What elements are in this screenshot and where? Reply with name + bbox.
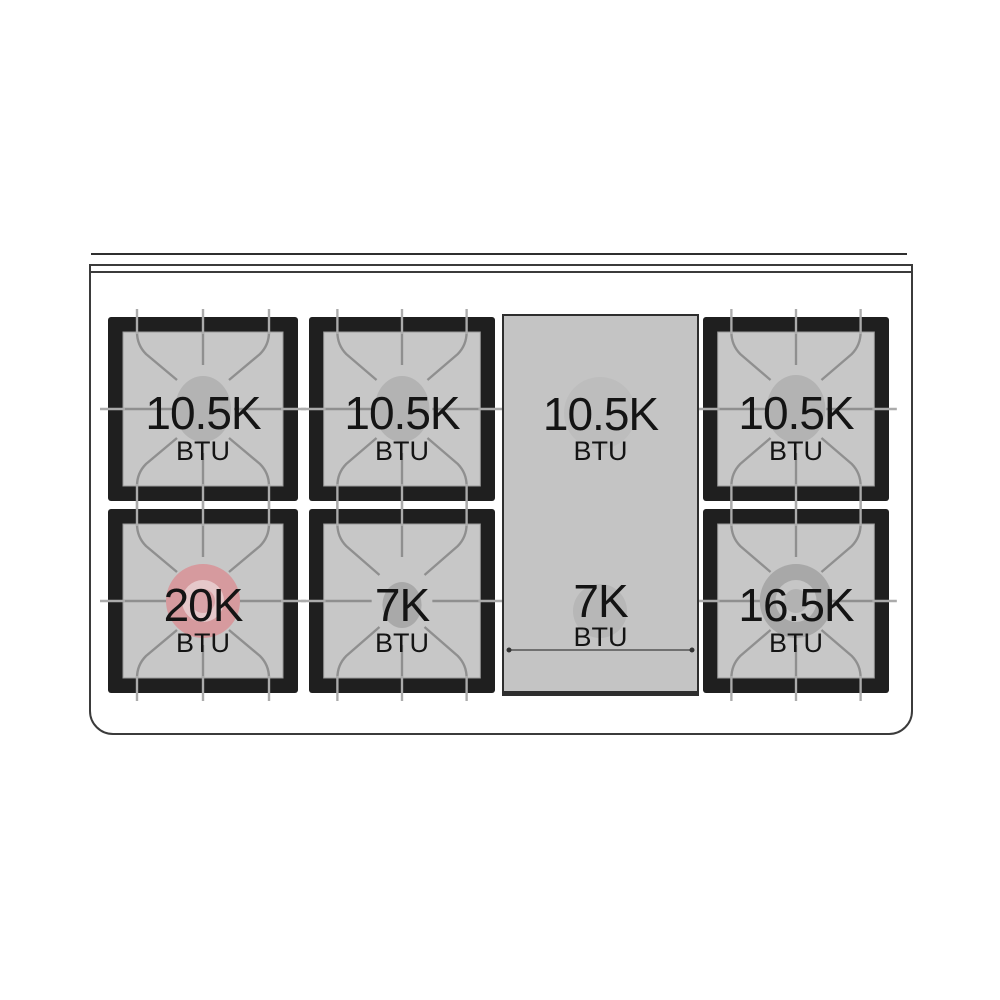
burner-btu-unit: BTU bbox=[108, 630, 298, 657]
burner-btu-unit: BTU bbox=[108, 438, 298, 465]
burner-btu-value: 10.5K bbox=[309, 390, 495, 436]
burner-grate-top-right: 10.5K BTU bbox=[703, 317, 889, 501]
cooktop-front-trim-line bbox=[91, 271, 911, 273]
burner-grate-bottom-left: 20K BTU bbox=[108, 509, 298, 693]
burner-grate-top-mid-left: 10.5K BTU bbox=[309, 317, 495, 501]
griddle-btu-value-top: 10.5K bbox=[502, 391, 699, 437]
burner-grate-bottom-right: 16.5K BTU bbox=[703, 509, 889, 693]
back-edge-line bbox=[91, 253, 907, 255]
griddle-btu-unit-top: BTU bbox=[502, 438, 699, 465]
burner-btu-unit: BTU bbox=[703, 438, 889, 465]
burner-btu-unit: BTU bbox=[309, 630, 495, 657]
cooktop-diagram: 10.5K BTU 10.5K BTU bbox=[0, 0, 1000, 1000]
burner-btu-unit: BTU bbox=[703, 630, 889, 657]
burner-btu-unit: BTU bbox=[309, 438, 495, 465]
burner-btu-value: 10.5K bbox=[108, 390, 298, 436]
griddle-btu-unit-bottom: BTU bbox=[502, 624, 699, 651]
burner-btu-value: 16.5K bbox=[703, 582, 889, 628]
burner-btu-value: 7K bbox=[309, 582, 495, 628]
burner-grate-top-left: 10.5K BTU bbox=[108, 317, 298, 501]
burner-grate-bottom-mid-left: 7K BTU bbox=[309, 509, 495, 693]
griddle-btu-value-bottom: 7K bbox=[502, 578, 699, 624]
burner-btu-value: 10.5K bbox=[703, 390, 889, 436]
griddle-plate: 10.5K BTU 7K BTU bbox=[502, 314, 699, 696]
burner-btu-value: 20K bbox=[108, 582, 298, 628]
